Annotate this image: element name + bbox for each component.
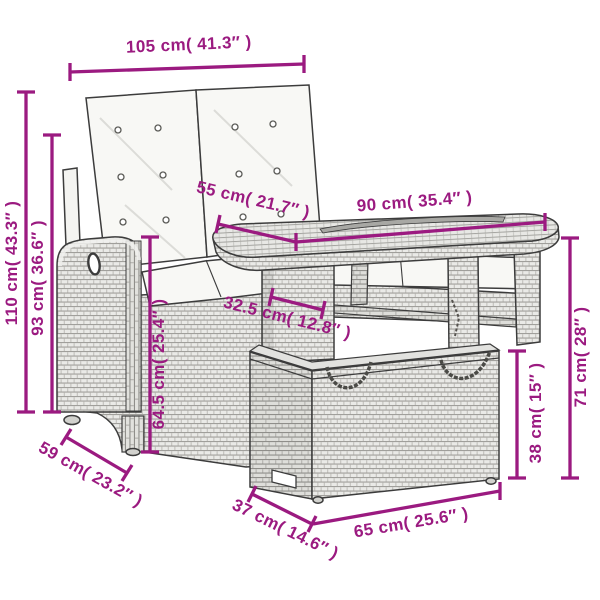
dimension-label-box-width: 65 cm( 25.6″ ) <box>352 504 469 542</box>
diagram-svg: 105 cm( 41.3″ ) 110 cm( 43.3″ ) 93 cm( 3… <box>0 0 600 600</box>
storage-box-foot-left <box>313 497 323 503</box>
dimension-label-table-height: 71 cm( 28″ ) <box>571 307 590 408</box>
dimension-label-table-length: 90 cm( 35.4″ ) <box>356 188 473 216</box>
table-right-leg <box>448 254 479 352</box>
dimension-label-bench-backrest-height: 93 cm( 36.6″ ) <box>28 220 47 336</box>
table-right-back-leg <box>514 246 540 345</box>
dimension-label-bench-width: 105 cm( 41.3″ ) <box>126 32 252 56</box>
storage-box <box>250 344 499 503</box>
bench-armrest-edge <box>126 241 141 411</box>
dimension-label-bench-arm-height: 64.5 cm( 25.4″ ) <box>149 299 168 430</box>
storage-box-front-face <box>312 351 499 499</box>
bench-front-leg <box>122 416 144 452</box>
storage-box-foot-right <box>486 478 496 484</box>
bench-front-foot <box>126 449 140 456</box>
bench-recline-strut <box>63 168 80 246</box>
dimension-label-bench-total-height: 110 cm( 43.3″ ) <box>2 201 21 326</box>
dimension-label-storage-box-height: 38 cm( 15″ ) <box>526 363 545 464</box>
dimension-line-bench-width <box>70 55 304 81</box>
bench-back-foot <box>64 416 80 425</box>
dimension-line-storage-box-height <box>508 351 526 478</box>
product-dimension-diagram: 105 cm( 41.3″ ) 110 cm( 43.3″ ) 93 cm( 3… <box>0 0 600 600</box>
dimension-label-box-depth: 37 cm( 14.6″ ) <box>229 495 341 563</box>
